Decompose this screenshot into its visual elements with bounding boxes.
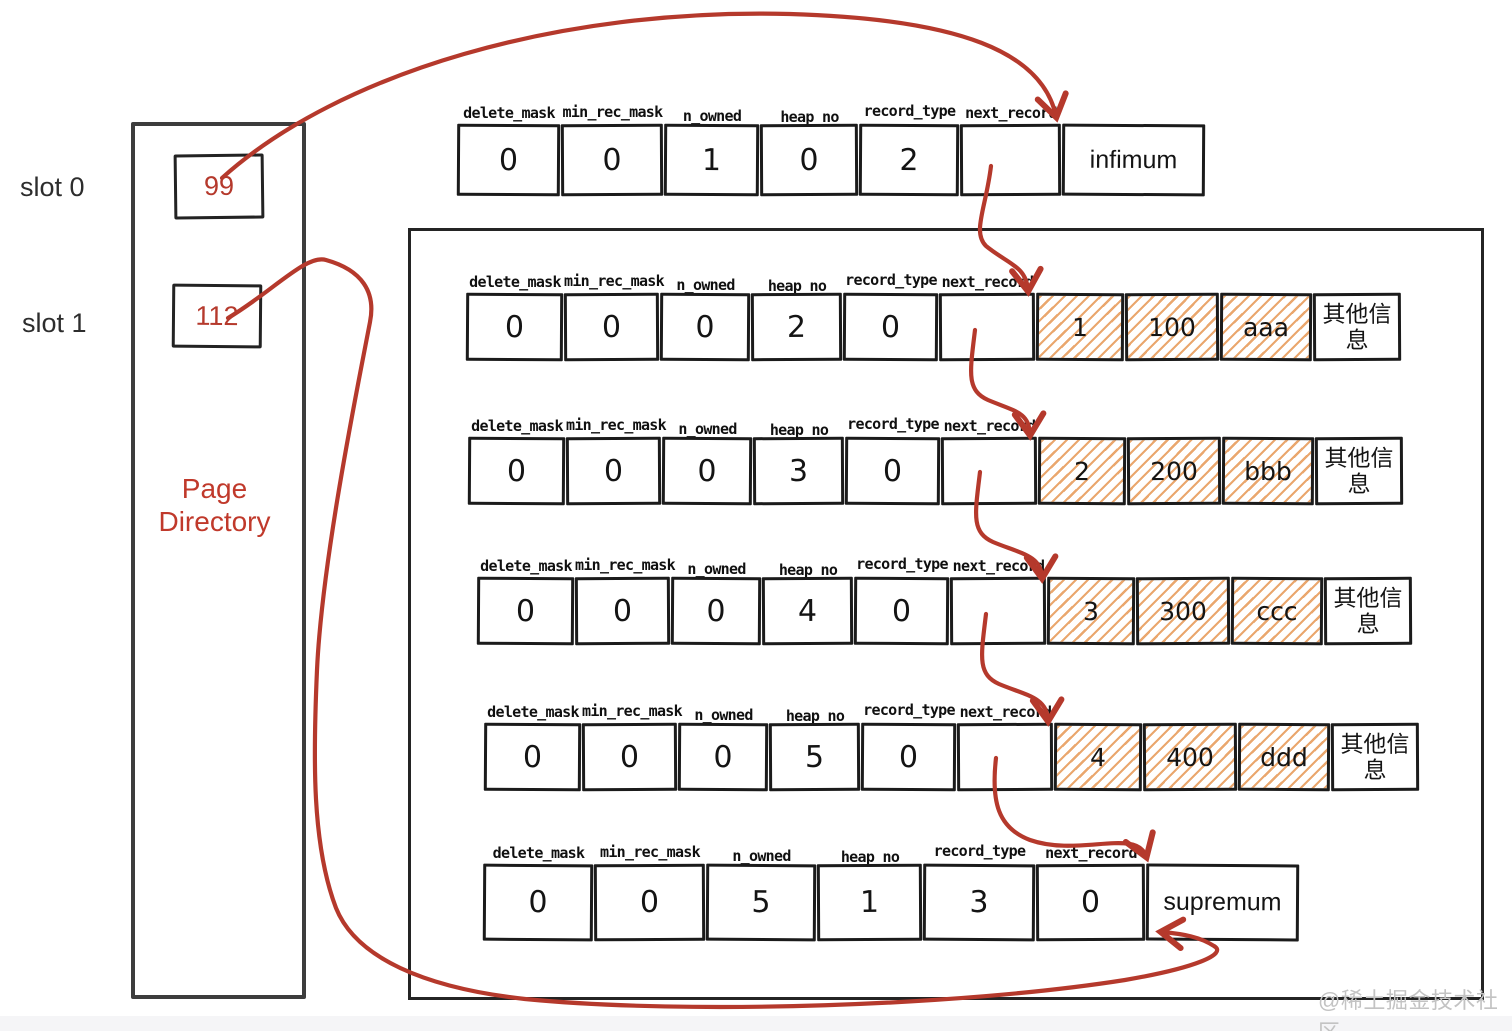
record-cells: 0 0 0 2 0 1 100 aaa 其他信息 bbox=[466, 293, 1402, 361]
header-next-record: next_record bbox=[950, 557, 1047, 575]
other-info-cell: 其他信息 bbox=[1324, 577, 1412, 645]
header-record-type: record_type bbox=[861, 701, 957, 719]
header-delete-mask: delete_mask bbox=[457, 104, 561, 122]
key-cell: 3 bbox=[1047, 577, 1135, 646]
field-cell: 1 bbox=[664, 124, 759, 197]
header-min-rec-mask: min_rec_mask bbox=[564, 272, 660, 290]
supremum-cells: 0 0 5 1 3 0 supremum bbox=[483, 864, 1300, 941]
data-cell: ccc bbox=[1231, 577, 1323, 646]
infimum-cells: 0 0 1 0 2 infimum bbox=[457, 124, 1206, 196]
header-delete-mask: delete_mask bbox=[483, 844, 594, 862]
field-cell: 2 bbox=[859, 124, 959, 197]
field-headers: delete_mask min_rec_mask n_owned heap_no… bbox=[468, 417, 1404, 435]
data-record-row-1: delete_mask min_rec_mask n_owned heap_no… bbox=[466, 273, 1402, 361]
header-next-record: next_record bbox=[957, 703, 1054, 721]
record-cells: 0 0 0 3 0 2 200 bbb 其他信息 bbox=[468, 437, 1404, 505]
key-cell: 2 bbox=[1038, 437, 1126, 506]
field-cell: 3 bbox=[923, 864, 1035, 942]
header-delete-mask: delete_mask bbox=[468, 417, 566, 435]
other-info-cell: 其他信息 bbox=[1313, 293, 1401, 361]
value-cell: 400 bbox=[1143, 723, 1237, 791]
slot-1-value: 112 bbox=[195, 300, 238, 331]
other-info-cell: 其他信息 bbox=[1331, 723, 1419, 791]
header-min-rec-mask: min_rec_mask bbox=[561, 103, 664, 121]
field-cell: 0 bbox=[845, 437, 940, 506]
slot-1-label: slot 1 bbox=[22, 308, 87, 339]
header-record-type: record_type bbox=[845, 415, 941, 433]
supremum-name-cell: supremum bbox=[1146, 864, 1299, 942]
header-min-rec-mask: min_rec_mask bbox=[594, 843, 706, 861]
field-cell: 0 bbox=[662, 437, 752, 506]
header-record-type: record_type bbox=[859, 102, 960, 120]
other-info-cell: 其他信息 bbox=[1315, 437, 1403, 505]
value-cell: 200 bbox=[1127, 437, 1221, 505]
field-cell: 0 bbox=[466, 293, 563, 362]
header-next-record: next_record bbox=[941, 417, 1038, 435]
data-cell: aaa bbox=[1220, 293, 1312, 362]
header-record-type: record_type bbox=[923, 842, 1036, 860]
field-cell: 0 bbox=[660, 293, 750, 362]
field-cell: 0 bbox=[671, 577, 761, 646]
field-cell: 0 bbox=[582, 723, 677, 791]
field-cell: 0 bbox=[594, 864, 705, 942]
page-directory-title: Page Directory bbox=[131, 472, 298, 538]
header-n-owned: n_owned bbox=[662, 420, 753, 438]
bottom-strip bbox=[0, 1016, 1512, 1031]
infimum-record-row: delete_mask min_rec_mask n_owned heap_no… bbox=[457, 104, 1206, 196]
field-cell: 5 bbox=[706, 864, 816, 942]
page-directory-box bbox=[131, 122, 306, 999]
field-cell: 0 bbox=[564, 293, 659, 361]
field-cell: 3 bbox=[753, 437, 844, 505]
next-record-cell bbox=[939, 293, 1035, 362]
data-record-row-2: delete_mask min_rec_mask n_owned heap_no… bbox=[468, 417, 1404, 505]
slot-0-value: 99 bbox=[204, 171, 234, 202]
field-cell: 2 bbox=[751, 293, 842, 361]
field-cell: 0 bbox=[483, 864, 593, 942]
field-cell: 0 bbox=[575, 577, 670, 645]
supremum-record-row: delete_mask min_rec_mask n_owned heap_no… bbox=[483, 844, 1300, 941]
field-cell: 0 bbox=[843, 293, 938, 362]
header-delete-mask: delete_mask bbox=[466, 273, 564, 291]
field-cell: 4 bbox=[762, 577, 853, 645]
field-headers: delete_mask min_rec_mask n_owned heap_no… bbox=[457, 104, 1206, 122]
header-min-rec-mask: min_rec_mask bbox=[566, 416, 662, 434]
field-headers: delete_mask min_rec_mask n_owned heap_no… bbox=[483, 844, 1300, 862]
next-record-cell bbox=[941, 437, 1037, 506]
watermark: @稀土掘金技术社区 bbox=[1318, 983, 1512, 1031]
header-n-owned: n_owned bbox=[664, 107, 760, 125]
field-cell: 0 bbox=[861, 723, 956, 792]
header-n-owned: n_owned bbox=[660, 276, 751, 294]
field-cell: 5 bbox=[769, 723, 860, 791]
header-record-type: record_type bbox=[854, 555, 950, 573]
field-cell: 0 bbox=[561, 124, 663, 197]
header-record-type: record_type bbox=[843, 271, 939, 289]
field-cell: 0 bbox=[678, 723, 768, 792]
next-record-cell: 0 bbox=[1036, 864, 1145, 942]
field-cell: 0 bbox=[566, 437, 661, 505]
header-n-owned: n_owned bbox=[706, 847, 817, 865]
field-cell: 0 bbox=[484, 723, 581, 792]
innodb-page-diagram: slot 0 slot 1 99 112 Page Directory dele… bbox=[0, 0, 1512, 1031]
field-cell: 0 bbox=[760, 124, 858, 197]
header-n-owned: n_owned bbox=[671, 560, 762, 578]
header-next-record: next_record bbox=[1036, 844, 1146, 862]
data-record-row-3: delete_mask min_rec_mask n_owned heap_no… bbox=[477, 557, 1413, 645]
field-cell: 1 bbox=[817, 864, 922, 942]
data-cell: bbb bbox=[1222, 437, 1314, 506]
next-record-cell bbox=[957, 723, 1053, 792]
header-delete-mask: delete_mask bbox=[484, 703, 582, 721]
header-n-owned: n_owned bbox=[678, 706, 769, 724]
data-cell: ddd bbox=[1238, 723, 1330, 792]
value-cell: 100 bbox=[1125, 293, 1219, 361]
key-cell: 4 bbox=[1054, 723, 1142, 792]
data-record-row-4: delete_mask min_rec_mask n_owned heap_no… bbox=[484, 703, 1420, 791]
record-cells: 0 0 0 5 0 4 400 ddd 其他信息 bbox=[484, 723, 1420, 791]
slot-1-value-box: 112 bbox=[172, 284, 263, 349]
slot-0-label: slot 0 bbox=[20, 172, 85, 203]
key-cell: 1 bbox=[1036, 293, 1124, 362]
field-headers: delete_mask min_rec_mask n_owned heap_no… bbox=[466, 273, 1402, 291]
record-cells: 0 0 0 4 0 3 300 ccc 其他信息 bbox=[477, 577, 1413, 645]
value-cell: 300 bbox=[1136, 577, 1230, 645]
header-min-rec-mask: min_rec_mask bbox=[582, 702, 678, 720]
field-headers: delete_mask min_rec_mask n_owned heap_no… bbox=[484, 703, 1420, 721]
field-cell: 0 bbox=[477, 577, 574, 646]
field-cell: 0 bbox=[854, 577, 949, 646]
field-cell: 0 bbox=[457, 124, 560, 197]
header-next-record: next_record bbox=[960, 104, 1062, 122]
next-record-cell bbox=[950, 577, 1046, 646]
header-min-rec-mask: min_rec_mask bbox=[575, 556, 671, 574]
field-cell: 0 bbox=[468, 437, 565, 506]
next-record-cell bbox=[960, 124, 1061, 197]
infimum-name-cell: infimum bbox=[1062, 124, 1205, 197]
header-next-record: next_record bbox=[939, 273, 1036, 291]
header-delete-mask: delete_mask bbox=[477, 557, 575, 575]
slot-0-value-box: 99 bbox=[174, 153, 265, 219]
field-headers: delete_mask min_rec_mask n_owned heap_no… bbox=[477, 557, 1413, 575]
